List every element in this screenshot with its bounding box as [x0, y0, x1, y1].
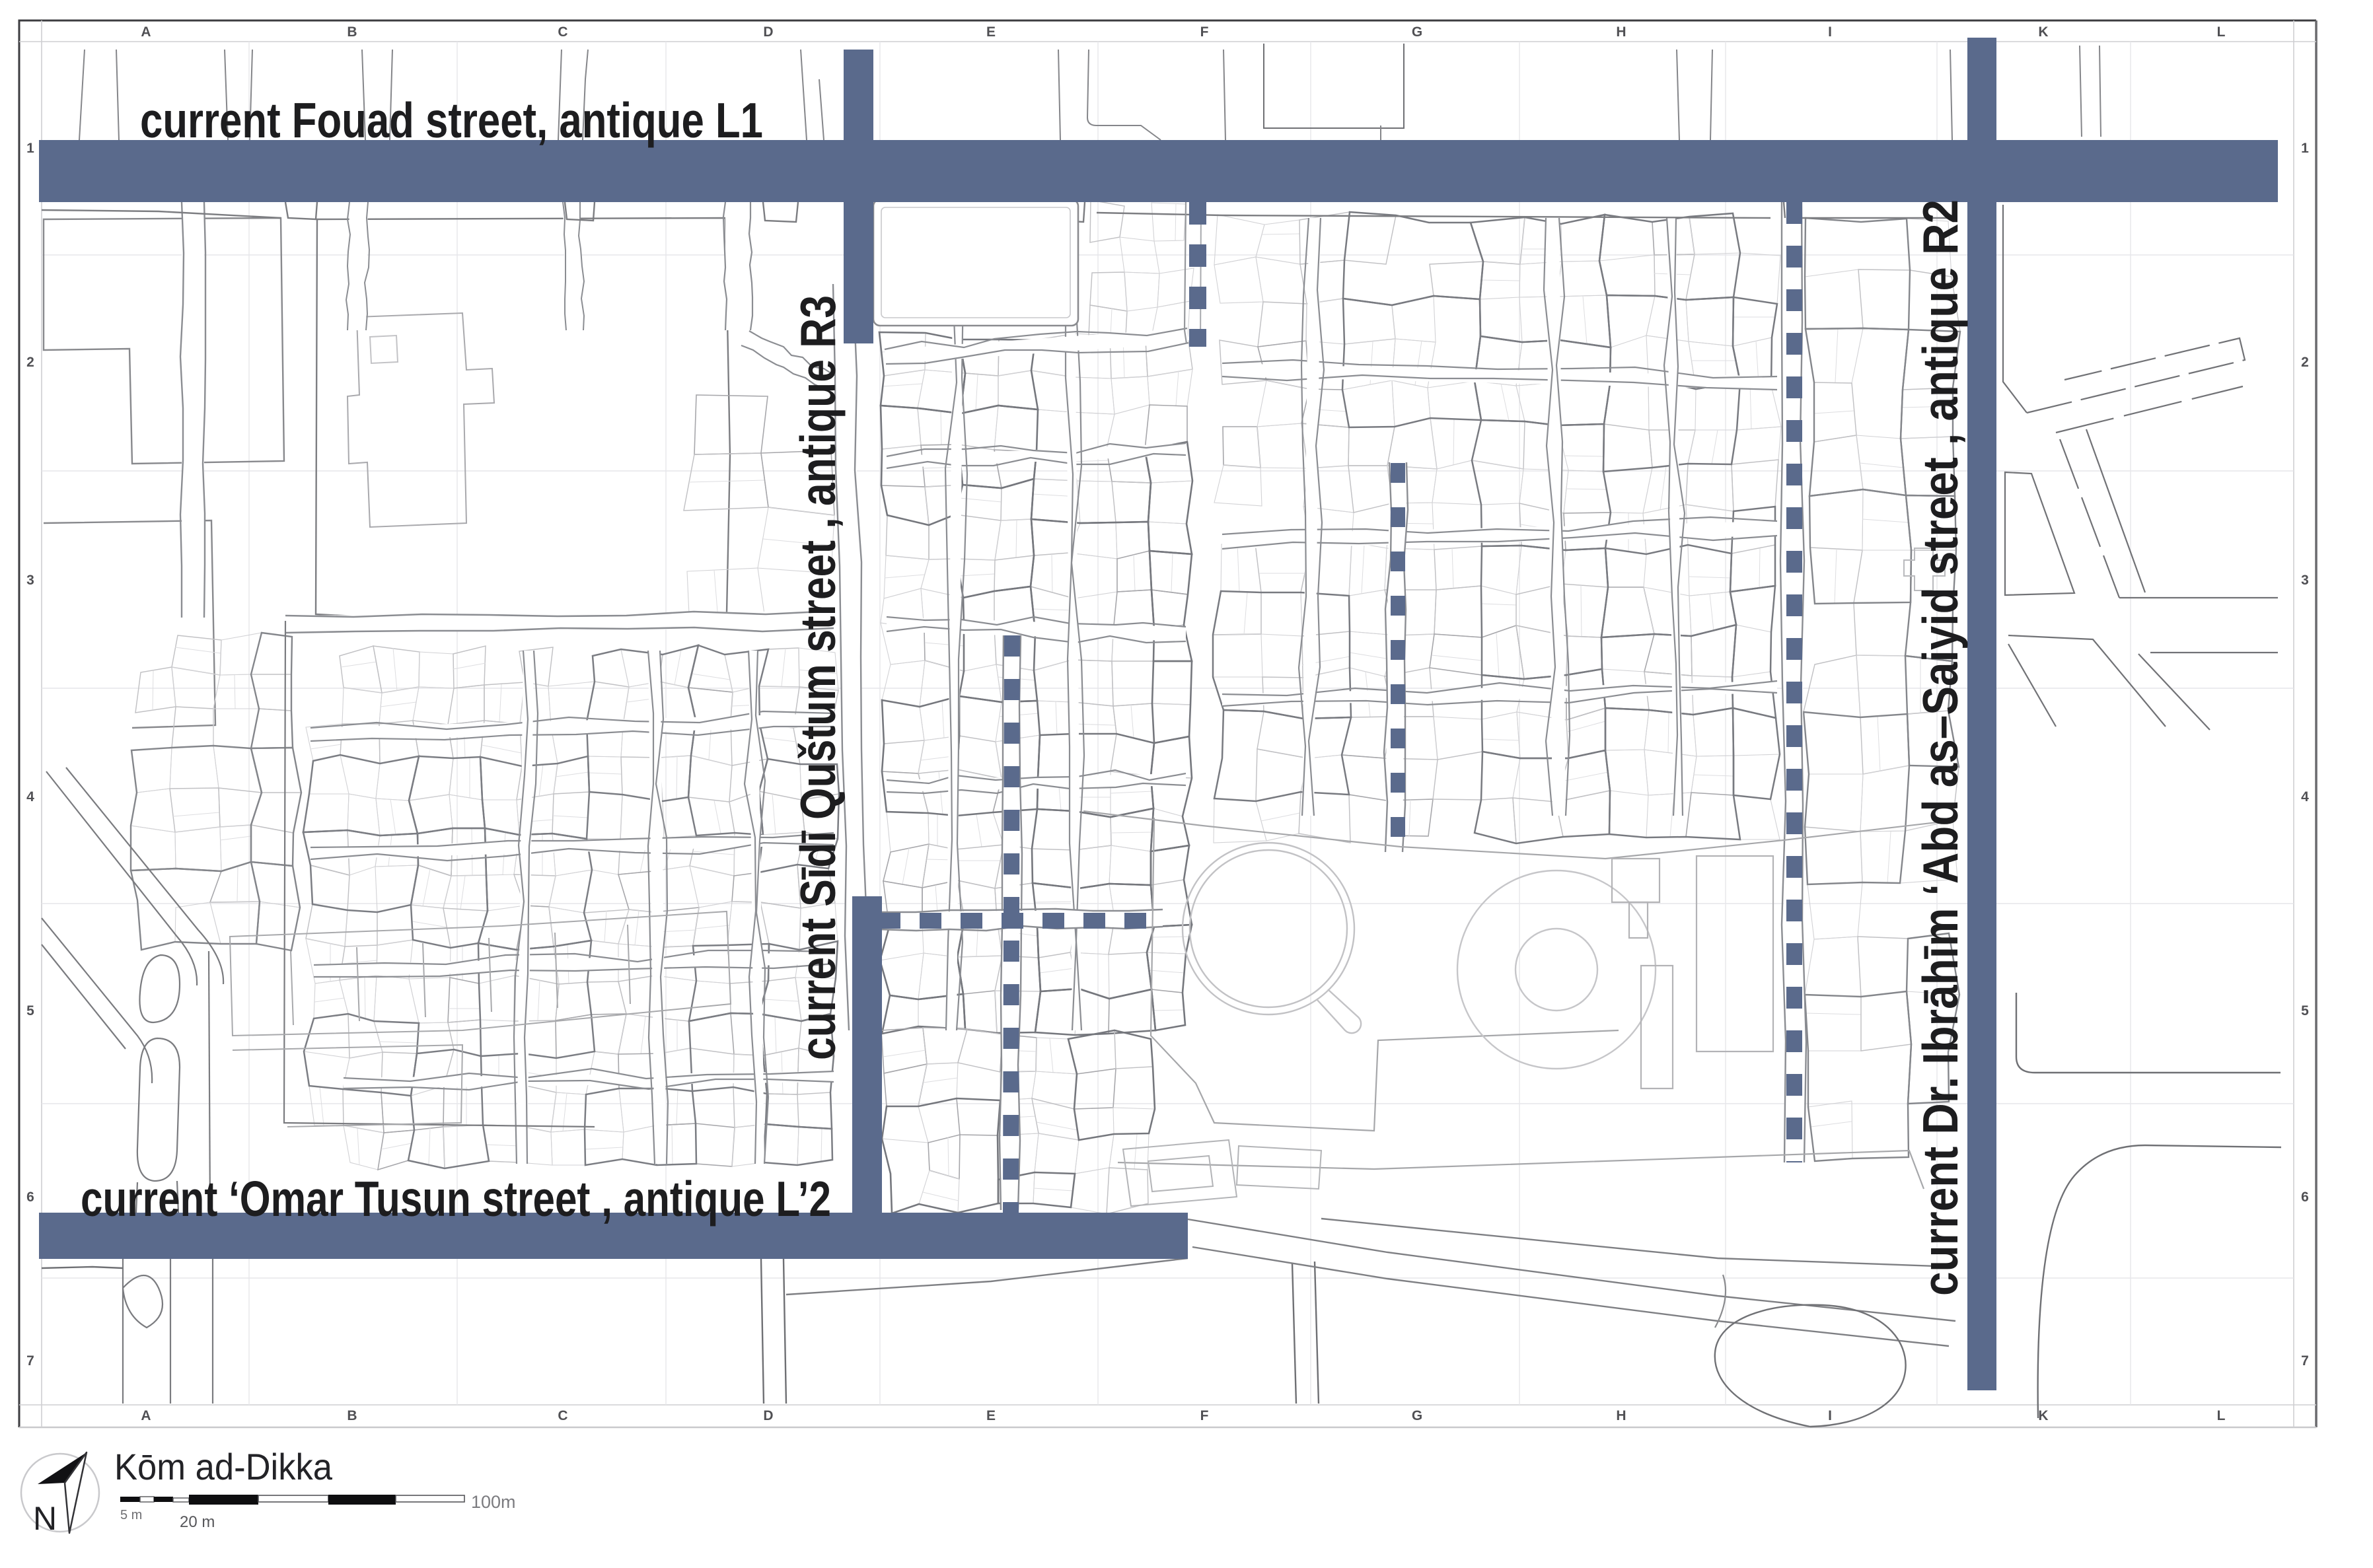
svg-text:C: C	[558, 1408, 567, 1423]
svg-text:C: C	[558, 24, 567, 40]
svg-text:A: A	[141, 24, 151, 40]
svg-text:H: H	[1616, 1408, 1626, 1423]
svg-text:1: 1	[2301, 141, 2309, 156]
svg-text:100m: 100m	[471, 1492, 516, 1512]
svg-text:K: K	[2038, 1408, 2048, 1423]
svg-text:20 m: 20 m	[180, 1513, 215, 1531]
svg-text:H: H	[1616, 24, 1626, 40]
svg-text:6: 6	[26, 1190, 34, 1205]
svg-text:2: 2	[2301, 355, 2309, 370]
svg-text:F: F	[1200, 1408, 1209, 1423]
svg-text:7: 7	[26, 1353, 34, 1369]
svg-text:N: N	[33, 1500, 57, 1537]
svg-text:A: A	[141, 1408, 151, 1423]
svg-text:B: B	[347, 24, 357, 40]
svg-text:5: 5	[26, 1003, 34, 1018]
svg-text:E: E	[986, 1408, 996, 1423]
svg-text:E: E	[986, 24, 996, 40]
svg-text:7: 7	[2301, 1353, 2309, 1369]
svg-text:I: I	[1828, 1408, 1832, 1423]
svg-text:G: G	[1412, 24, 1422, 40]
svg-text:current ‘Omar Tusun street , a: current ‘Omar Tusun street , antique L’2	[81, 1171, 831, 1227]
svg-text:L: L	[2217, 24, 2226, 40]
svg-text:D: D	[763, 24, 773, 40]
svg-text:3: 3	[2301, 573, 2309, 588]
svg-text:current Sīdī Quštum street , a: current Sīdī Quštum street , antique R3	[790, 295, 846, 1060]
svg-text:F: F	[1200, 24, 1209, 40]
svg-text:6: 6	[2301, 1190, 2309, 1205]
svg-text:G: G	[1412, 1408, 1422, 1423]
svg-text:5: 5	[2301, 1003, 2309, 1018]
svg-text:4: 4	[26, 789, 34, 804]
svg-text:3: 3	[26, 573, 34, 588]
svg-text:current Dr. Ibrāhīm ‘Abd as–Sa: current Dr. Ibrāhīm ‘Abd as–Saiyid stree…	[1913, 199, 1968, 1296]
svg-text:2: 2	[26, 355, 34, 370]
svg-text:L: L	[2217, 1408, 2226, 1423]
svg-text:K: K	[2038, 24, 2048, 40]
svg-text:current Fouad street, antique: current Fouad street, antique L1	[140, 92, 763, 148]
svg-text:1: 1	[26, 141, 34, 156]
svg-text:4: 4	[2301, 789, 2309, 804]
svg-text:B: B	[347, 1408, 357, 1423]
svg-text:Kōm ad-Dikka: Kōm ad-Dikka	[114, 1446, 333, 1487]
svg-text:5 m: 5 m	[120, 1508, 142, 1522]
svg-text:I: I	[1828, 24, 1832, 40]
svg-text:D: D	[763, 1408, 773, 1423]
